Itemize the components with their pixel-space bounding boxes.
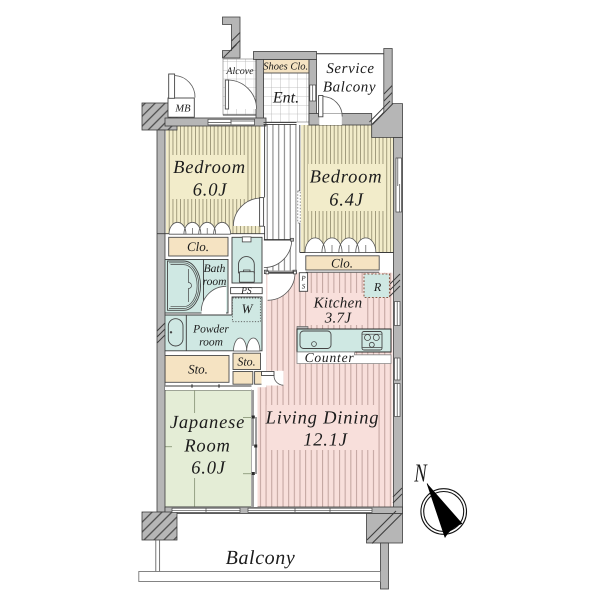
svg-text:MB: MB <box>174 104 191 115</box>
svg-text:Kitchen: Kitchen <box>313 296 363 312</box>
svg-text:P: P <box>300 275 306 283</box>
svg-text:Bath: Bath <box>204 263 226 275</box>
svg-text:Sto.: Sto. <box>237 355 255 369</box>
svg-text:Room: Room <box>183 437 230 457</box>
svg-text:Service: Service <box>326 61 374 77</box>
svg-text:W: W <box>242 301 254 316</box>
svg-text:R: R <box>373 280 382 294</box>
svg-text:room: room <box>203 276 227 288</box>
svg-text:N: N <box>414 459 428 488</box>
svg-text:12.1J: 12.1J <box>303 431 348 451</box>
svg-text:Japanese: Japanese <box>170 413 245 433</box>
svg-text:Balcony: Balcony <box>226 547 296 569</box>
svg-text:Shoes Clo.: Shoes Clo. <box>263 62 308 73</box>
svg-text:Powder: Powder <box>192 324 229 336</box>
svg-text:6.0J: 6.0J <box>191 459 226 479</box>
svg-text:Living Dining: Living Dining <box>265 409 380 429</box>
svg-text:6.0J: 6.0J <box>193 181 228 201</box>
svg-text:Clo.: Clo. <box>331 256 353 271</box>
svg-text:3.7J: 3.7J <box>324 311 353 327</box>
svg-text:Bedroom: Bedroom <box>173 158 246 178</box>
svg-text:PS: PS <box>240 286 252 296</box>
svg-text:S: S <box>302 283 306 291</box>
svg-text:room: room <box>199 337 223 349</box>
svg-text:Balcony: Balcony <box>323 80 376 96</box>
svg-text:Alcove: Alcove <box>225 66 254 77</box>
svg-text:6.4J: 6.4J <box>329 191 364 211</box>
svg-text:Counter: Counter <box>305 350 355 365</box>
svg-text:Clo.: Clo. <box>187 239 209 254</box>
svg-text:Bedroom: Bedroom <box>310 168 383 188</box>
svg-text:Sto.: Sto. <box>188 362 208 377</box>
svg-text:Ent.: Ent. <box>272 90 299 107</box>
